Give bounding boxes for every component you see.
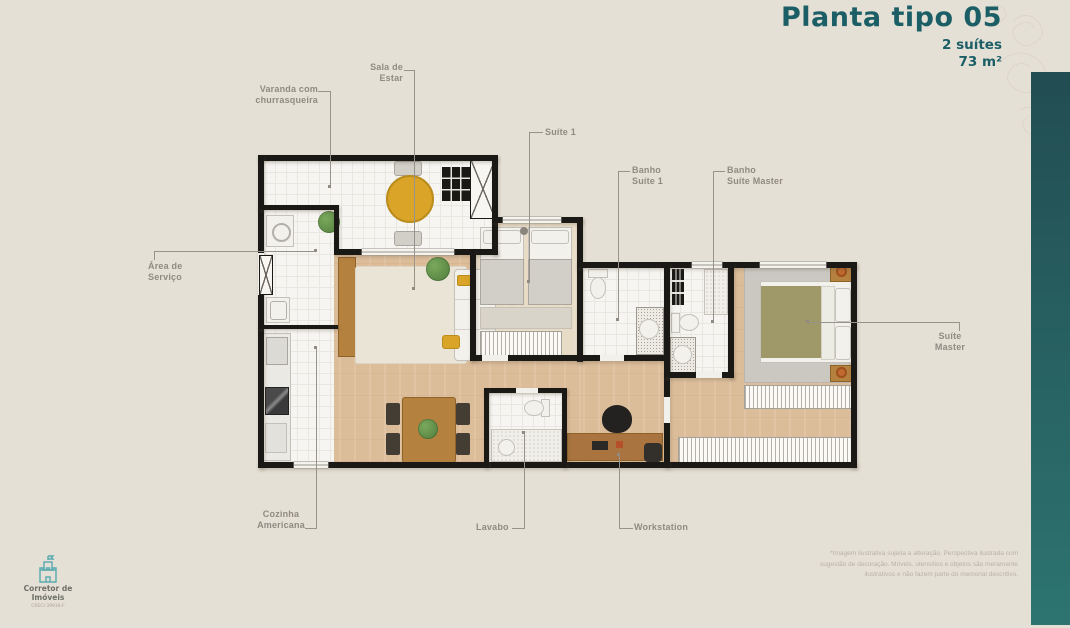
- bedside-lamp: [836, 367, 847, 378]
- spec-suites: 2 suítes: [682, 37, 1002, 54]
- header: Planta tipo 05 2 suítes 73 m²: [682, 4, 1002, 71]
- desk-chair: [644, 443, 662, 462]
- label-varanda: Varanda com churrasqueira: [223, 84, 318, 107]
- leader-line: [154, 251, 155, 260]
- leader-dot: [314, 249, 317, 252]
- laptop: [592, 441, 608, 450]
- wall: [484, 388, 489, 468]
- single-bed: [528, 227, 572, 305]
- label-suite-master: Suíte Master: [928, 331, 972, 354]
- door-opening: [696, 372, 722, 378]
- wardrobe: [678, 437, 852, 463]
- floor-plan: [258, 155, 858, 468]
- cooktop: [265, 387, 289, 415]
- leader-line: [316, 348, 317, 529]
- leader-line: [620, 528, 633, 529]
- label-banho-suite1: Banho Suíte 1: [632, 165, 682, 188]
- pillow: [835, 326, 851, 360]
- window: [503, 217, 561, 223]
- leader-dot: [806, 320, 809, 323]
- barbecue-grill: [442, 167, 470, 201]
- tv-rack: [338, 257, 356, 357]
- washing-machine: [266, 215, 294, 247]
- leader-line: [154, 251, 316, 252]
- label-banho-master: Banho Suíte Master: [727, 165, 797, 188]
- shower-niche: [672, 269, 684, 305]
- laundry-sink: [266, 297, 290, 323]
- sliding-door: [362, 249, 454, 255]
- toilet-bowl: [679, 314, 699, 331]
- spec-area: 73 m²: [682, 54, 1002, 71]
- round-sink: [673, 345, 692, 364]
- leader-dot: [616, 318, 619, 321]
- wall: [334, 205, 339, 250]
- label-area-servico: Área de Serviço: [148, 261, 193, 284]
- bedroom-rug: [480, 307, 572, 329]
- wall: [851, 262, 857, 468]
- wall: [492, 155, 498, 255]
- spec-block: 2 suítes 73 m²: [682, 37, 1002, 71]
- single-bed: [480, 227, 524, 305]
- side-accent-bar: [1031, 72, 1070, 625]
- door-opening: [516, 388, 538, 393]
- wall: [470, 249, 476, 361]
- toilet-bowl: [590, 277, 606, 299]
- logo-name: Corretor de Imóveis: [13, 584, 83, 603]
- pillow: [835, 288, 851, 322]
- page: Planta tipo 05 2 suítes 73 m²: [0, 0, 1070, 628]
- black-pot: [602, 405, 632, 433]
- leader-dot: [617, 453, 620, 456]
- throw-pillow: [457, 275, 471, 286]
- leader-dot: [328, 185, 331, 188]
- wall: [577, 217, 583, 362]
- pillow: [531, 230, 569, 244]
- balcony-chair: [394, 231, 422, 246]
- dining-chair: [456, 403, 470, 425]
- disclaimer-text: *Imagem ilustrativa sujeita a alteração.…: [718, 549, 1018, 581]
- leader-line: [619, 171, 630, 172]
- blanket: [480, 259, 524, 305]
- toilet-bowl: [524, 400, 544, 416]
- leader-line: [618, 171, 619, 320]
- window: [294, 462, 328, 468]
- leader-line: [619, 455, 620, 529]
- leader-line: [330, 91, 331, 187]
- round-sink: [639, 319, 659, 339]
- blanket: [528, 259, 572, 305]
- building-icon: [36, 554, 60, 584]
- round-sink: [498, 439, 515, 456]
- label-cozinha: Cozinha Americana: [250, 509, 312, 532]
- leader-dot: [522, 431, 525, 434]
- page-title: Planta tipo 05: [682, 4, 1002, 32]
- leader-dot: [314, 346, 317, 349]
- label-sala: Sala de Estar: [348, 62, 403, 85]
- wall: [258, 462, 857, 468]
- balcony-chair: [394, 161, 422, 176]
- window: [760, 262, 826, 268]
- leader-line: [529, 132, 530, 282]
- door-opening: [664, 397, 670, 423]
- nightstand-lamp: [520, 227, 528, 235]
- plant: [426, 257, 450, 281]
- leader-line: [524, 433, 525, 529]
- balcony-round-table: [386, 175, 434, 223]
- sink-basin: [270, 301, 287, 320]
- leader-line: [530, 132, 543, 133]
- kitchen-sink: [266, 337, 288, 365]
- wall: [728, 262, 734, 378]
- service-window-box: [259, 255, 273, 295]
- ottoman: [442, 335, 460, 349]
- leader-line: [808, 322, 960, 323]
- dining-chair: [386, 433, 400, 455]
- window: [692, 262, 722, 268]
- leader-dot: [412, 287, 415, 290]
- table-plant: [418, 419, 438, 439]
- leader-dot: [527, 280, 530, 283]
- leader-line: [713, 171, 714, 322]
- leader-line: [959, 322, 960, 331]
- wall: [258, 205, 338, 210]
- label-workstation: Workstation: [634, 522, 696, 533]
- leader-dot: [711, 320, 714, 323]
- logo-creci: CRECI 39916-F: [13, 604, 83, 609]
- washer-door: [272, 223, 291, 242]
- door-opening: [482, 355, 508, 361]
- shower-floor: [704, 269, 728, 315]
- clothes-rack: [744, 385, 852, 409]
- leader-line: [414, 70, 415, 289]
- sheet-fold: [821, 286, 835, 360]
- desk-accessory: [616, 441, 623, 448]
- wall: [258, 155, 498, 161]
- wall: [562, 388, 567, 468]
- pillow: [483, 230, 521, 244]
- dining-chair: [456, 433, 470, 455]
- door-opening: [600, 355, 624, 361]
- kitchen-cabinet: [265, 423, 287, 453]
- label-lavabo: Lavabo: [476, 522, 511, 533]
- label-suite1: Suíte 1: [545, 127, 590, 138]
- leader-line: [714, 171, 725, 172]
- wardrobe: [480, 331, 562, 357]
- wall: [258, 325, 338, 329]
- dining-chair: [386, 403, 400, 425]
- realtor-logo: Corretor de Imóveis CRECI 39916-F: [13, 554, 83, 609]
- wall: [664, 262, 670, 468]
- wall: [258, 155, 264, 468]
